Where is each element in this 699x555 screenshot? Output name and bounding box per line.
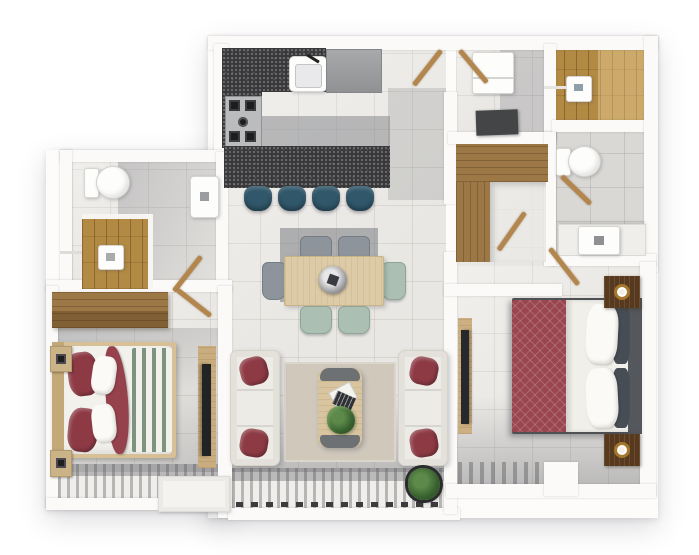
bedroom2-nightstand — [50, 346, 72, 372]
wall-closet-bottom — [444, 284, 562, 296]
burner-icon — [229, 100, 240, 111]
bar-stool — [346, 186, 374, 211]
bar-stool — [278, 186, 306, 211]
master-railing-shadow — [458, 462, 546, 486]
sofa-left — [230, 350, 280, 466]
centerpiece-detail-icon — [327, 274, 340, 287]
coffee-table — [318, 368, 362, 448]
red-throw-pillow — [407, 354, 440, 387]
bedroom2-nightstand — [50, 450, 72, 477]
bedroom2-wardrobe — [52, 292, 168, 328]
closet-wardrobe-top — [456, 144, 548, 182]
master-tv-panel — [461, 330, 469, 424]
master-toilet-bowl — [568, 146, 601, 177]
wall-bathroom2-left — [60, 150, 72, 290]
wall-bottom-living — [228, 508, 460, 520]
master-shower-arm-icon — [544, 86, 566, 89]
dining-chair — [382, 262, 406, 300]
bar-stool — [244, 186, 272, 211]
red-throw-pillow — [238, 427, 270, 459]
bedroom2-white-pillow — [90, 403, 118, 443]
sink-basin — [295, 64, 322, 88]
centerpiece-bowl — [319, 266, 347, 294]
sofa-cushion-divider — [405, 389, 441, 391]
coffee-table-plant — [327, 406, 355, 434]
coffee-table-dark-end — [320, 368, 360, 381]
sofa-cushion-divider — [405, 425, 441, 427]
coffee-table-dark-end — [320, 435, 360, 448]
table-lamp-icon — [56, 458, 66, 468]
shower-shelf — [98, 245, 124, 270]
deck-dashed-edge-right — [236, 502, 442, 507]
kitchen-island — [224, 146, 390, 188]
wall-basin — [190, 176, 219, 218]
master-nightstand — [604, 434, 640, 466]
master-white-pillow — [584, 303, 619, 365]
basin-detail-icon — [594, 236, 604, 245]
burner-icon — [245, 100, 256, 111]
table-lamp-icon — [56, 354, 66, 364]
island-shadow — [262, 116, 390, 148]
balcony-plant — [408, 468, 440, 500]
kitchen-sink — [289, 56, 327, 92]
balcony-left-shadow — [58, 464, 220, 476]
master-white-pillow — [584, 367, 619, 429]
wall-shower-bottom — [552, 120, 656, 132]
shower-arm-icon — [60, 251, 82, 254]
wall-master-right — [640, 262, 656, 496]
hallway-shadow — [388, 88, 446, 200]
bedroom2-tv-panel — [202, 364, 211, 456]
shower-deck — [82, 214, 153, 289]
bar-stool — [312, 186, 340, 211]
wall-master-bottom-block — [544, 462, 578, 496]
cooktop-knob-icon — [238, 117, 248, 127]
master-shower-deck-light-half — [598, 48, 650, 122]
sofa-right — [398, 350, 448, 466]
burner-icon — [245, 131, 256, 142]
sofa-cushion-divider — [237, 425, 273, 427]
closet-wardrobe-left — [456, 182, 490, 262]
floor-plan — [0, 0, 699, 555]
cup-icon — [614, 442, 630, 458]
master-headboard — [628, 298, 642, 434]
shower-control-icon — [106, 253, 115, 261]
burner-icon — [229, 131, 240, 142]
wall-bathroom2-top — [60, 150, 222, 162]
planter-box — [158, 476, 230, 512]
sofa-cushion-divider — [237, 389, 273, 391]
master-nightstand — [604, 276, 640, 308]
red-throw-pillow — [237, 354, 271, 388]
red-throw-pillow — [408, 427, 440, 459]
master-vanity-basin — [578, 226, 620, 255]
refrigerator — [326, 49, 382, 93]
dining-chair — [338, 306, 370, 334]
toilet-bowl — [96, 166, 130, 199]
bedroom2-striped-blanket — [132, 348, 172, 452]
gas-cooktop — [225, 96, 262, 148]
basin-faucet-icon — [200, 192, 209, 201]
dining-chair — [262, 262, 286, 300]
cup-icon — [614, 284, 630, 300]
shower-control-icon — [574, 84, 583, 91]
utility-counter-slab — [476, 109, 519, 135]
master-duvet-maroon — [512, 300, 568, 432]
wardrobe-dark-band — [52, 311, 168, 328]
wall-right-outer-upper — [644, 36, 658, 272]
dining-chair — [300, 306, 332, 334]
master-shower-shelf — [566, 76, 592, 102]
